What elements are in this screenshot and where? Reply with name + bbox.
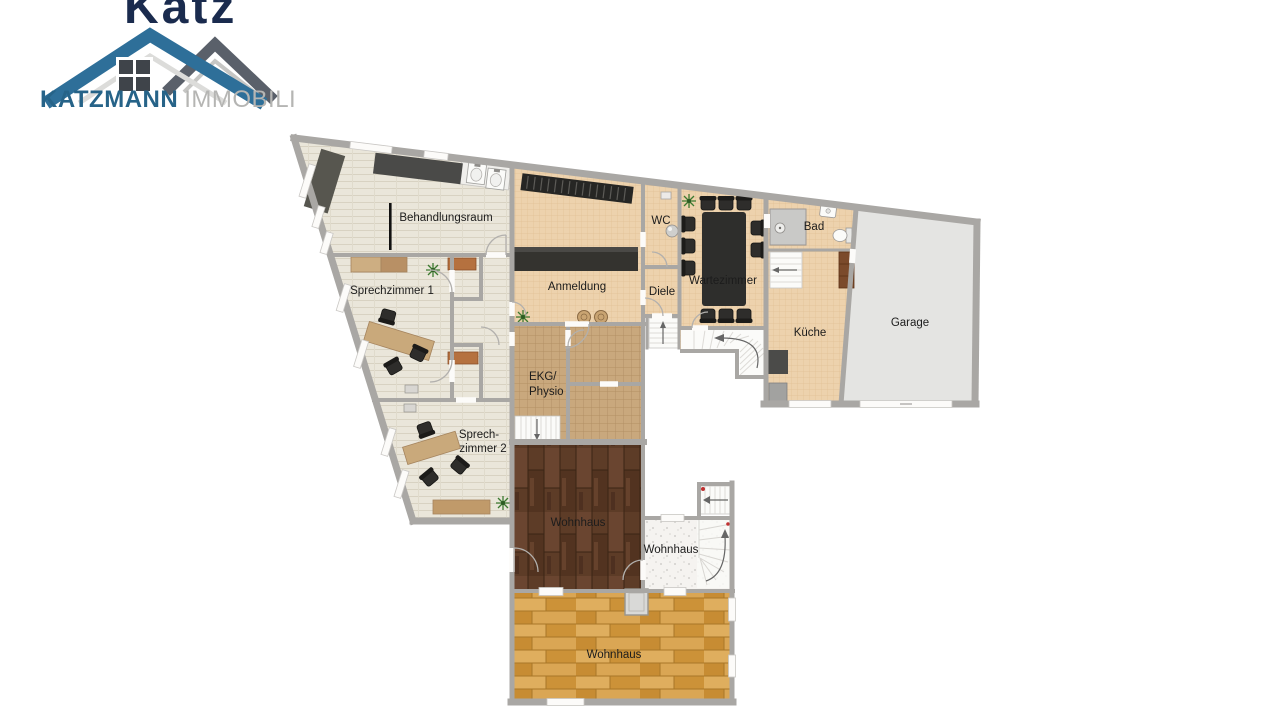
label-sprechzimmer-2-line2: zimmer 2 xyxy=(459,443,506,455)
kitchen-appliance xyxy=(769,383,787,402)
screenshot-stage: Katz KATZMANNIMMOBILIEN xyxy=(0,0,1280,720)
label-wohnhaus-upper: Wohnhaus xyxy=(551,517,606,529)
garage-door xyxy=(860,401,952,408)
waiting-chair xyxy=(718,309,735,323)
room-wohnhaus-lower xyxy=(514,592,732,702)
plant-icon xyxy=(496,496,510,510)
waiting-chair xyxy=(700,309,717,323)
desk xyxy=(351,257,381,272)
wc-sink-highlight xyxy=(668,227,672,231)
label-sprechzimmer-2-line1: Sprech- xyxy=(459,429,499,441)
stairs-wohnhaus-upper xyxy=(700,486,731,514)
brand-primary: KATZMANN xyxy=(40,86,178,113)
label-wartezimmer: Wartezimmer xyxy=(689,275,757,287)
waiting-chair xyxy=(681,260,695,277)
waiting-table xyxy=(702,212,746,306)
label-kueche: Küche xyxy=(794,327,827,339)
waiting-chair xyxy=(736,309,753,323)
plant-icon xyxy=(682,194,696,208)
sideboard xyxy=(433,500,490,514)
desk xyxy=(381,257,407,272)
label-wohnhaus-stairhall: Wohnhaus xyxy=(644,544,699,556)
partition-line xyxy=(389,203,392,250)
waiting-chair xyxy=(736,196,753,210)
label-diele: Diele xyxy=(649,286,675,298)
waiting-chair xyxy=(681,216,695,233)
phone xyxy=(404,404,416,412)
stairs-bad xyxy=(770,252,802,288)
label-ekg-line1: EKG/ xyxy=(529,371,557,383)
label-wohnhaus-lower: Wohnhaus xyxy=(587,649,642,661)
label-ekg-line2: Physio xyxy=(529,386,564,398)
reception-counter xyxy=(514,247,638,271)
katzmann-logo: Katz KATZMANNIMMOBILIEN xyxy=(18,0,298,124)
label-behandlungsraum: Behandlungsraum xyxy=(399,212,492,224)
room-garage xyxy=(843,210,977,404)
label-garage: Garage xyxy=(891,317,929,329)
waiting-chair xyxy=(718,196,735,210)
phone xyxy=(405,385,418,393)
stairs-winder xyxy=(697,520,731,588)
kitchen-cabinet xyxy=(768,350,788,374)
plant-icon xyxy=(516,310,530,324)
kitchen-door xyxy=(789,401,831,408)
waiting-chair xyxy=(681,238,695,255)
stairs-entry xyxy=(649,318,678,348)
label-sprechzimmer-1: Sprechzimmer 1 xyxy=(350,285,434,297)
stairs-ekg xyxy=(515,416,560,440)
cistern xyxy=(661,192,671,199)
stairs-marker-dot xyxy=(726,522,730,526)
stool xyxy=(595,311,608,324)
waiting-chair xyxy=(751,220,765,237)
waiting-chair xyxy=(700,196,717,210)
waiting-chair xyxy=(751,242,765,259)
room-floors xyxy=(295,139,977,702)
logo-brand-line: KATZMANNIMMOBILIEN xyxy=(40,86,298,114)
brand-secondary: IMMOBILIEN xyxy=(184,86,298,113)
toilet xyxy=(833,228,852,243)
label-wc: WC xyxy=(651,215,670,227)
shower xyxy=(770,209,806,245)
stairs-marker-dot xyxy=(701,487,705,491)
label-anmeldung: Anmeldung xyxy=(548,281,606,293)
label-bad: Bad xyxy=(804,221,824,233)
